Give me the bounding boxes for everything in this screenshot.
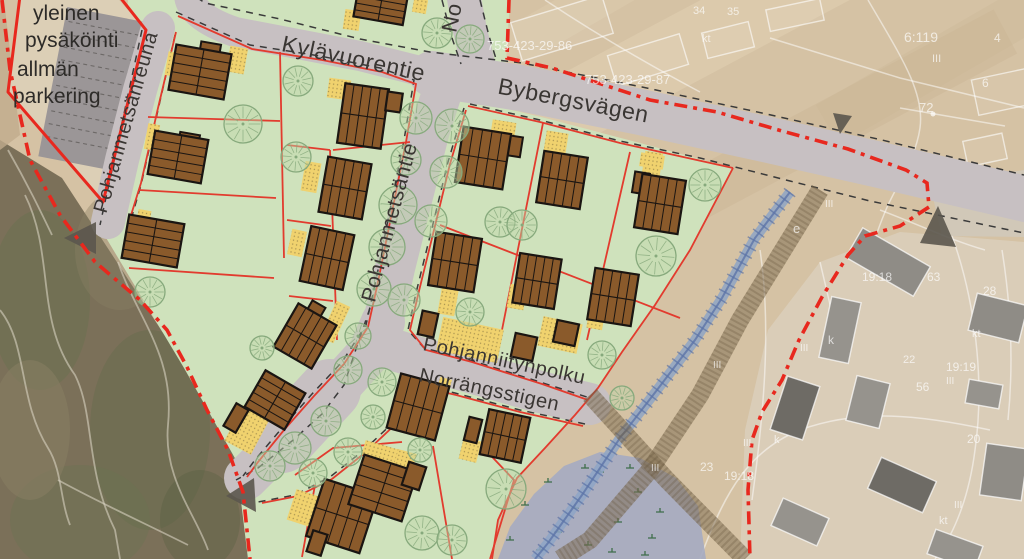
building-footprint <box>148 131 209 184</box>
aerial-building <box>980 443 1024 500</box>
tree-symbol <box>437 525 467 555</box>
parking-area-label: parkering <box>13 85 101 108</box>
cadastral-annotation: 6:119 <box>904 29 938 45</box>
cadastral-annotation: 19:18 <box>724 469 754 483</box>
tree-trunk <box>357 335 360 338</box>
tree-symbol <box>610 386 634 410</box>
tree-symbol <box>224 105 262 143</box>
cadastral-annotation: 28 <box>983 284 997 298</box>
cadastral-annotation: III <box>800 343 808 354</box>
tree-symbol <box>334 438 362 466</box>
tree-symbol <box>408 438 432 462</box>
cadastral-annotation: 19:18 <box>862 270 892 284</box>
cadastral-annotation: III <box>743 438 751 449</box>
tree-symbol <box>361 405 385 429</box>
building-footprint <box>587 268 639 326</box>
tree-trunk <box>655 255 658 258</box>
tree-trunk <box>451 125 454 128</box>
tree-trunk <box>149 291 152 294</box>
tree-symbol <box>345 323 371 349</box>
tree-trunk <box>505 488 508 491</box>
building-body <box>553 320 579 346</box>
tree-symbol <box>281 142 311 172</box>
cadastral-annotation: 56 <box>916 380 930 394</box>
cadastral-annotation: kt <box>702 33 711 45</box>
cadastral-annotation: III <box>932 53 941 65</box>
tree-symbol <box>430 156 462 188</box>
yard-patch <box>412 0 428 14</box>
cadastral-annotation: 22 <box>903 354 915 366</box>
tree-trunk <box>469 38 472 41</box>
tree-trunk <box>312 472 315 475</box>
cadastral-annotation: k <box>774 434 780 446</box>
cadastral-annotation: III <box>713 360 721 371</box>
tree-symbol <box>507 210 537 240</box>
building-footprint <box>634 174 686 234</box>
building-footprint <box>553 320 579 346</box>
tree-trunk <box>499 221 502 224</box>
tree-trunk <box>372 416 375 419</box>
tree-symbol <box>250 336 274 360</box>
cadastral-annotation: 63 <box>927 270 941 284</box>
tree-symbol <box>255 451 285 481</box>
cadastral-annotation: e <box>793 221 800 236</box>
parking-area-label: pysäköinti <box>25 29 118 52</box>
tree-symbol <box>311 406 341 436</box>
tree-trunk <box>451 539 454 542</box>
tree-trunk <box>419 449 422 452</box>
cadastral-annotation: 753-423-29-86 <box>487 38 572 53</box>
building-footprint <box>318 157 371 220</box>
building-body <box>385 92 402 113</box>
tree-trunk <box>381 381 384 384</box>
tree-symbol <box>588 341 616 369</box>
cadastral-annotation: kt <box>939 515 948 527</box>
cadastral-annotation: 72 <box>919 100 933 115</box>
tree-trunk <box>430 220 433 223</box>
tree-trunk <box>445 171 448 174</box>
parking-area-label: allmän <box>17 58 79 81</box>
tree-trunk <box>269 465 272 468</box>
tree-trunk <box>621 397 624 400</box>
tree-symbol <box>405 516 439 550</box>
cadastral-annotation: 23 <box>700 460 714 474</box>
tree-trunk <box>469 311 472 314</box>
cadastral-annotation: 753-423-29-87 <box>585 72 670 87</box>
building-footprint <box>385 92 402 113</box>
tree-symbol <box>388 284 420 316</box>
tree-symbol <box>299 459 327 487</box>
plan-illustration-map: KylävuorentieBybergsvägenPohjanmetsäntie… <box>0 0 1024 559</box>
tree-symbol <box>435 109 469 143</box>
tree-trunk <box>347 451 350 454</box>
cadastral-annotation: 19:19 <box>946 360 976 374</box>
building-footprint <box>428 232 482 293</box>
tree-symbol <box>368 368 396 396</box>
tree-trunk <box>601 354 604 357</box>
tree-trunk <box>347 369 350 372</box>
tree-trunk <box>325 420 328 423</box>
cadastral-annotation: kt <box>972 328 981 340</box>
tree-trunk <box>242 123 245 126</box>
yard-dots <box>412 0 428 14</box>
tree-symbol <box>486 469 526 509</box>
cadastral-annotation: 4 <box>994 31 1001 45</box>
cadastral-annotation: 34 <box>693 5 705 17</box>
tree-trunk <box>294 447 297 450</box>
tree-trunk <box>295 156 298 159</box>
tree-symbol <box>135 277 165 307</box>
tree-symbol <box>283 66 313 96</box>
tree-symbol <box>334 356 362 384</box>
tree-trunk <box>421 532 424 535</box>
building-footprint <box>536 151 588 209</box>
cadastral-annotation: 6 <box>982 76 989 90</box>
building-footprint <box>337 83 389 149</box>
cadastral-annotation: k <box>828 333 835 347</box>
cadastral-annotation: III <box>651 463 659 474</box>
tree-trunk <box>297 80 300 83</box>
aerial-building <box>965 379 1003 409</box>
tree-trunk <box>436 32 439 35</box>
tree-symbol <box>689 169 721 201</box>
tree-trunk <box>704 184 707 187</box>
tree-symbol <box>636 236 676 276</box>
building-footprint <box>480 409 531 463</box>
cadastral-annotation: 20 <box>967 432 981 446</box>
building-footprint <box>168 44 231 99</box>
building-footprint <box>512 253 561 309</box>
tree-symbol <box>456 298 484 326</box>
cadastral-annotation: III <box>825 199 833 210</box>
tree-trunk <box>521 224 524 227</box>
tree-symbol <box>400 102 432 134</box>
cadastral-annotation: III <box>954 500 962 511</box>
tree-trunk <box>403 299 406 302</box>
parking-area-label: yleinen <box>33 2 100 25</box>
cadastral-annotation: 35 <box>727 6 739 18</box>
tree-trunk <box>415 117 418 120</box>
building-footprint <box>122 214 185 267</box>
plan-map-stage: KylävuorentieBybergsvägenPohjanmetsäntie… <box>0 0 1024 559</box>
tree-trunk <box>261 347 264 350</box>
tree-symbol <box>415 205 447 237</box>
cadastral-annotation: III <box>946 376 954 387</box>
